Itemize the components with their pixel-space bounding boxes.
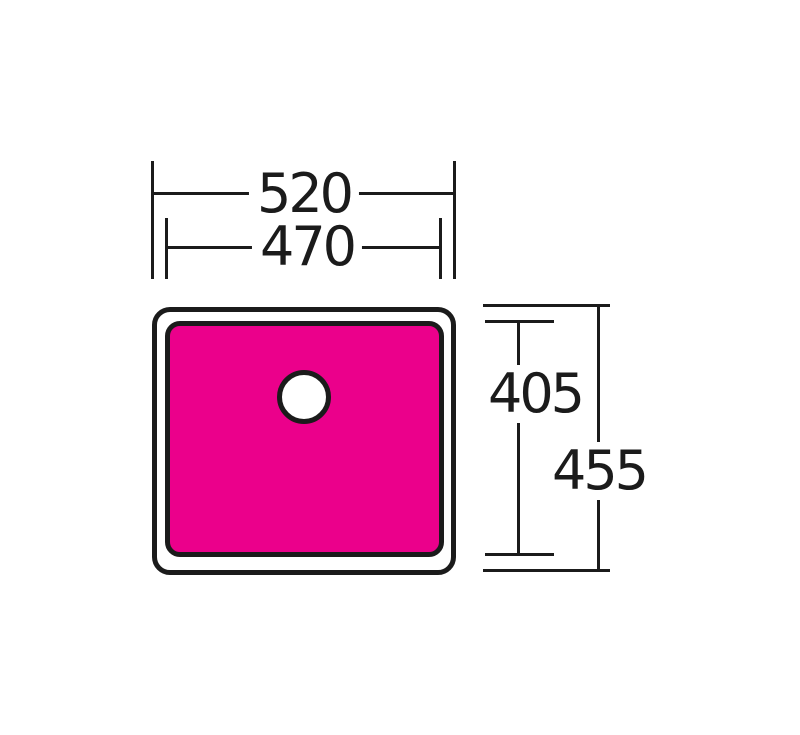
dimension-line-inner-height: [517, 321, 520, 555]
outer-height-dimension-label: 455: [544, 442, 654, 500]
dimension-line-outer-height: [597, 305, 600, 571]
extension-line-outer-width-right: [453, 161, 456, 279]
sink-basin: [165, 321, 444, 557]
extension-tick-outer-height-top: [483, 304, 610, 307]
extension-tick-outer-height-bottom: [483, 569, 610, 572]
inner-height-dimension-label: 405: [480, 365, 590, 423]
drain-hole-icon: [277, 370, 331, 424]
extension-line-outer-width-left: [151, 161, 154, 279]
dimension-drawing-canvas: 520 470 455 405: [0, 0, 800, 735]
inner-width-dimension-label: 470: [252, 218, 362, 276]
